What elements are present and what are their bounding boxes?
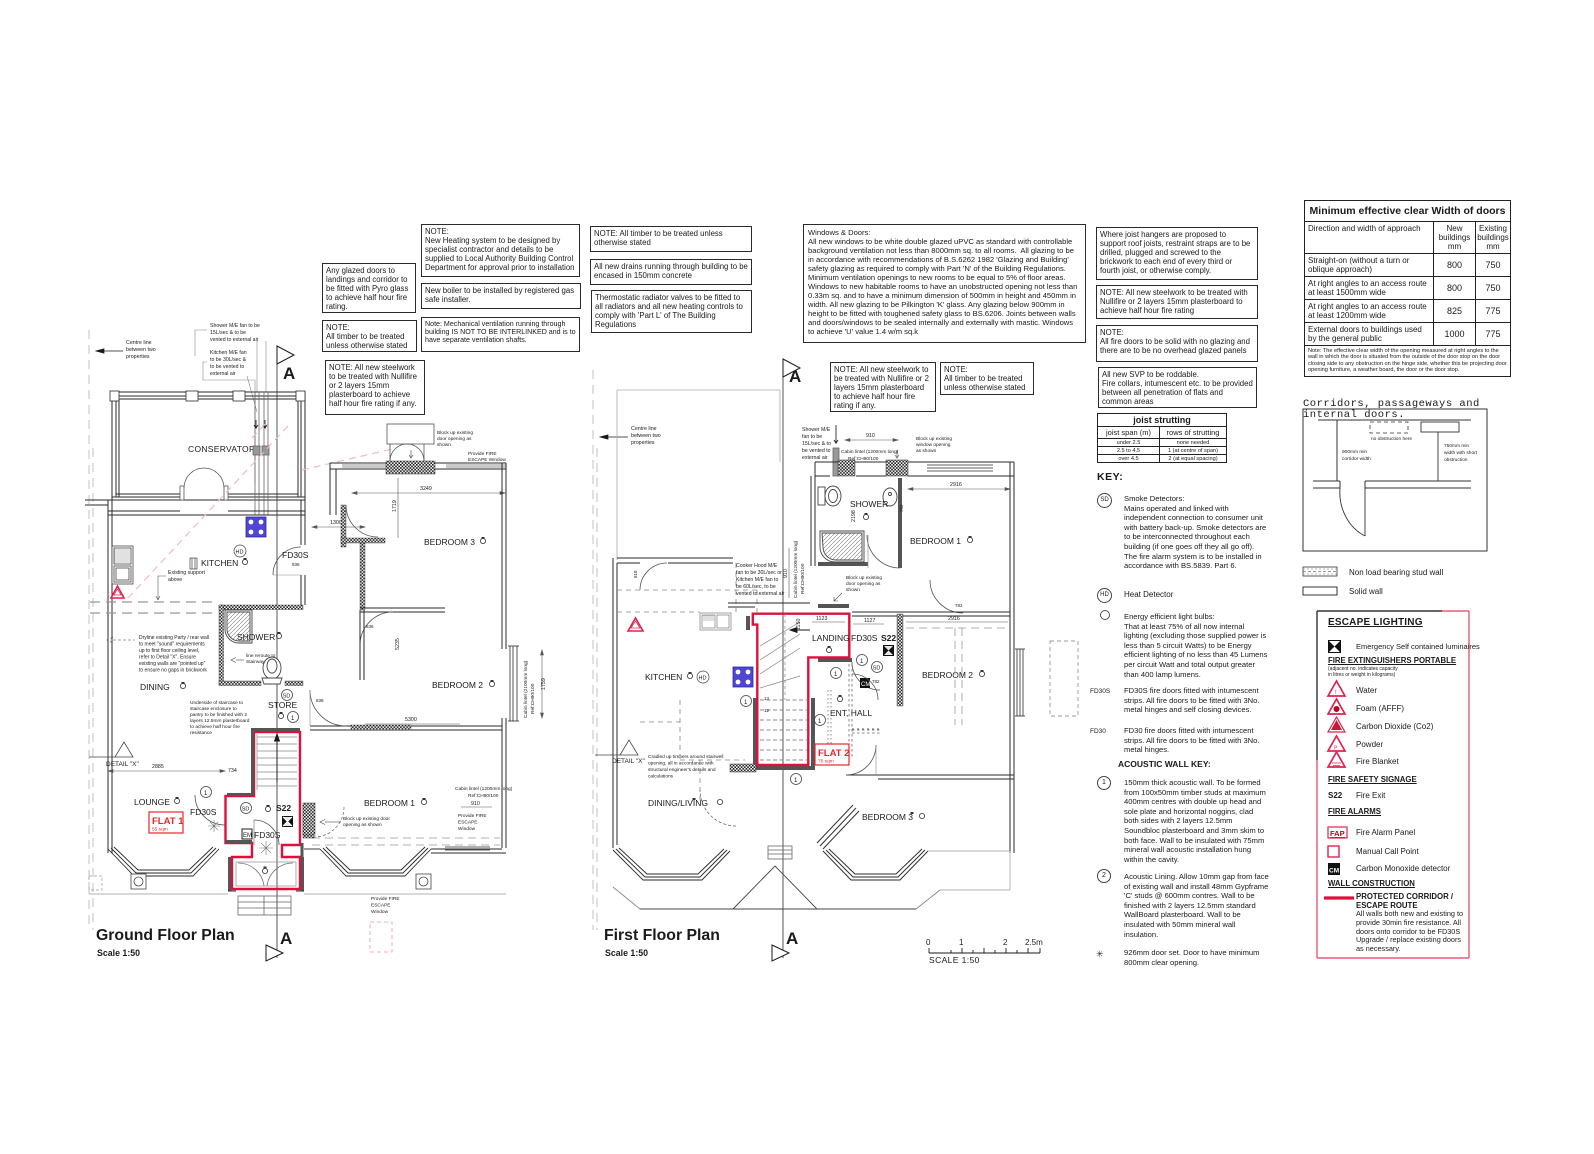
svg-text:LOUNGE: LOUNGE <box>134 797 170 807</box>
svg-text:ESCAPE: ESCAPE <box>371 903 390 909</box>
svg-text:opening as shown: opening as shown <box>343 822 382 828</box>
svg-text:Block up existing door: Block up existing door <box>343 816 390 822</box>
svg-text:Window: Window <box>371 909 389 915</box>
svg-text:1719: 1719 <box>392 500 398 512</box>
svg-text:FD30S: FD30S <box>851 633 878 643</box>
svg-text:CM: CM <box>861 682 870 688</box>
svg-text:Block up existing: Block up existing <box>916 436 952 442</box>
svg-text:as shown: as shown <box>916 448 937 454</box>
svg-text:CM: CM <box>1329 868 1339 875</box>
svg-text:EM: EM <box>243 833 252 839</box>
svg-text:be vented to: be vented to <box>802 448 831 454</box>
svg-text:2916: 2916 <box>950 482 962 488</box>
svg-text:836: 836 <box>292 562 300 567</box>
svg-text:Centre line: Centre line <box>126 340 152 346</box>
svg-text:15L/sec & to: 15L/sec & to <box>802 441 831 447</box>
svg-text:BEDROOM 3: BEDROOM 3 <box>862 812 913 822</box>
svg-text:layers 12.5mm plasterboard: layers 12.5mm plasterboard <box>190 718 250 724</box>
svg-text:Solid wall: Solid wall <box>1349 587 1383 596</box>
svg-text:Ref:CH90/100: Ref:CH90/100 <box>800 563 806 594</box>
svg-text:Cabin lintel (1200mm long): Cabin lintel (1200mm long) <box>841 449 899 455</box>
svg-text:vented to external air: vented to external air <box>736 591 785 597</box>
svg-text:Ref:CH90/100: Ref:CH90/100 <box>468 793 499 799</box>
svg-text:DINING: DINING <box>140 682 170 692</box>
svg-text:Non load bearing stud wall: Non load bearing stud wall <box>1349 568 1444 577</box>
svg-text:Centre line: Centre line <box>631 426 657 432</box>
svg-text:between two: between two <box>126 347 156 353</box>
svg-text:refer to Detail "X". Ensure: refer to Detail "X". Ensure <box>139 655 196 661</box>
svg-text:2: 2 <box>1003 938 1008 947</box>
svg-text:properties: properties <box>126 354 150 360</box>
svg-text:836: 836 <box>366 624 374 629</box>
svg-text:ENT, HALL: ENT, HALL <box>830 708 872 718</box>
svg-text:5300: 5300 <box>405 717 417 723</box>
svg-text:910: 910 <box>783 569 789 578</box>
svg-text:12: 12 <box>764 708 770 713</box>
svg-text:1127: 1127 <box>864 618 875 624</box>
svg-text:FD30S: FD30S <box>282 550 309 560</box>
svg-text:BEDROOM 1: BEDROOM 1 <box>910 536 961 546</box>
svg-text:above: above <box>168 577 182 583</box>
svg-text:Provide FIRE: Provide FIRE <box>458 813 487 819</box>
svg-text:Shower M/E fan to be: Shower M/E fan to be <box>210 323 260 329</box>
svg-text:Cabin lintel (1200mm long): Cabin lintel (1200mm long) <box>793 540 799 598</box>
svg-text:FD30S: FD30S <box>190 807 217 817</box>
svg-text:ESCAPE: ESCAPE <box>458 820 477 826</box>
svg-text:1759: 1759 <box>541 678 547 690</box>
svg-text:S22: S22 <box>276 803 291 813</box>
svg-text:external air: external air <box>802 455 828 461</box>
svg-text:782: 782 <box>955 603 963 608</box>
svg-text:910: 910 <box>471 801 480 807</box>
svg-text:pantry to be finished with 2: pantry to be finished with 2 <box>190 712 247 718</box>
svg-text:Block up existing: Block up existing <box>846 575 882 581</box>
svg-text:Underside of staircase to: Underside of staircase to <box>190 700 243 706</box>
svg-text:BEDROOM 3: BEDROOM 3 <box>424 537 475 547</box>
svg-text:vented to external air: vented to external air <box>210 337 259 343</box>
svg-text:BEDROOM 2: BEDROOM 2 <box>432 680 483 690</box>
svg-text:782: 782 <box>872 679 880 684</box>
svg-text:13: 13 <box>764 696 770 701</box>
svg-text:S22: S22 <box>881 633 896 643</box>
svg-text:Ref:CH90/100: Ref:CH90/100 <box>848 456 879 462</box>
svg-text:1: 1 <box>959 938 964 947</box>
svg-text:obstruction: obstruction <box>1444 457 1468 463</box>
svg-text:818: 818 <box>633 570 638 578</box>
svg-text:5235: 5235 <box>395 638 401 650</box>
svg-text:ESCAPE Window: ESCAPE Window <box>468 457 506 463</box>
svg-text:KITCHEN: KITCHEN <box>645 672 682 682</box>
svg-text:calculations: calculations <box>648 774 674 780</box>
svg-text:no obstruction here: no obstruction here <box>1371 436 1412 442</box>
svg-text:2.5m: 2.5m <box>1025 938 1043 947</box>
svg-text:BEDROOM 2: BEDROOM 2 <box>922 670 973 680</box>
svg-text:A: A <box>283 364 295 383</box>
svg-text:Cabin lintel (1200mm long): Cabin lintel (1200mm long) <box>455 786 513 792</box>
svg-text:734: 734 <box>228 768 237 774</box>
svg-text:Existing support: Existing support <box>168 570 205 576</box>
svg-text:2916: 2916 <box>948 616 960 622</box>
svg-text:55 sqm: 55 sqm <box>152 827 168 833</box>
svg-text:A: A <box>786 929 798 948</box>
svg-text:SHOWER: SHOWER <box>237 632 275 642</box>
svg-text:BEDROOM 1: BEDROOM 1 <box>364 798 415 808</box>
svg-text:DETAIL "X": DETAIL "X" <box>106 761 139 768</box>
svg-text:HD: HD <box>236 550 244 556</box>
svg-text:838: 838 <box>316 698 324 703</box>
svg-text:existing walls are "pointed up: existing walls are "pointed up" <box>139 661 206 667</box>
svg-text:up to first floor ceiling leve: up to first floor ceiling level, <box>139 648 199 654</box>
svg-text:DETAIL "X": DETAIL "X" <box>612 758 645 765</box>
svg-text:LANDING: LANDING <box>812 633 850 643</box>
svg-text:0: 0 <box>926 938 931 947</box>
svg-text:782: 782 <box>899 504 904 512</box>
svg-text:900mm min: 900mm min <box>1342 449 1367 455</box>
svg-text:Provide FIRE: Provide FIRE <box>371 896 400 902</box>
svg-text:DINING/LIVING: DINING/LIVING <box>648 798 708 808</box>
svg-text:SD: SD <box>283 694 291 700</box>
svg-text:Shower M/E: Shower M/E <box>802 427 831 433</box>
svg-text:STORE: STORE <box>268 700 297 710</box>
svg-text:FAP: FAP <box>1330 829 1345 838</box>
svg-text:FLAT 2: FLAT 2 <box>818 748 850 759</box>
svg-text:2885: 2885 <box>152 764 164 770</box>
svg-text:to ensure no gaps in brickwork: to ensure no gaps in brickwork <box>139 668 207 674</box>
svg-text:Window: Window <box>458 826 476 832</box>
svg-text:Kitchen M/E fan to: Kitchen M/E fan to <box>736 577 779 583</box>
svg-text:door opening as: door opening as <box>437 436 472 442</box>
svg-text:Cradled up timbers around stai: Cradled up timbers around stairwell <box>648 754 723 760</box>
svg-text:A: A <box>280 929 292 948</box>
svg-text:corridor width: corridor width <box>1342 456 1371 462</box>
svg-text:Provide FIRE: Provide FIRE <box>468 451 497 457</box>
svg-text:resistance: resistance <box>190 730 212 736</box>
svg-text:1123: 1123 <box>816 616 827 622</box>
svg-text:SD: SD <box>242 807 250 813</box>
svg-text:2198: 2198 <box>851 510 857 522</box>
svg-text:internal doors.: internal doors. <box>1303 409 1405 421</box>
svg-text:Block up existing: Block up existing <box>437 430 473 436</box>
svg-text:HD: HD <box>699 676 707 682</box>
svg-text:KITCHEN: KITCHEN <box>201 558 238 568</box>
svg-text:FLAT 1: FLAT 1 <box>152 816 184 827</box>
svg-text:Cooker Hood M/E: Cooker Hood M/E <box>736 563 778 569</box>
svg-text:door opening as: door opening as <box>846 581 881 587</box>
svg-text:910: 910 <box>866 433 875 439</box>
svg-text:A: A <box>789 367 801 386</box>
svg-text:to achieve half hour fire: to achieve half hour fire <box>190 724 240 730</box>
svg-text:staircase enclosure to: staircase enclosure to <box>190 706 237 712</box>
svg-text:window opening: window opening <box>916 442 951 448</box>
svg-text:1300: 1300 <box>330 520 342 526</box>
svg-text:SCALE 1:50: SCALE 1:50 <box>929 955 980 965</box>
svg-text:Ref:CH90/100: Ref:CH90/100 <box>530 683 536 714</box>
svg-text:to be 30L/sec &: to be 30L/sec & <box>210 357 247 363</box>
svg-text:to meet "sound" requirements: to meet "sound" requirements <box>139 642 205 648</box>
svg-text:opening, all in accordance wit: opening, all in accordance with <box>648 761 714 767</box>
svg-text:between two: between two <box>631 433 661 439</box>
svg-text:3249: 3249 <box>420 486 432 492</box>
svg-text:shown: shown <box>846 587 860 593</box>
svg-text:to be vented to: to be vented to <box>210 364 244 370</box>
svg-text:750mm min: 750mm min <box>1444 443 1469 449</box>
svg-text:Kitchen M/E fan: Kitchen M/E fan <box>210 350 247 356</box>
svg-text:be 60L/sec, to be: be 60L/sec, to be <box>736 584 776 590</box>
svg-text:width with short: width with short <box>1444 450 1478 456</box>
svg-text:Cabin lintel (2100mm long): Cabin lintel (2100mm long) <box>523 660 529 718</box>
svg-text:shown: shown <box>437 442 451 448</box>
svg-text:SHOWER: SHOWER <box>850 499 888 509</box>
svg-text:CONSERVATORY: CONSERVATORY <box>188 444 261 454</box>
svg-text:Dryline existing Party / rear: Dryline existing Party / rear wall <box>139 635 209 641</box>
svg-text:fan to be: fan to be <box>802 434 822 440</box>
svg-text:SD: SD <box>873 666 881 672</box>
svg-text:15L/sec & to be: 15L/sec & to be <box>210 330 246 336</box>
svg-text:structural engineer's details: structural engineer's details and <box>648 767 716 773</box>
svg-text:properties: properties <box>631 440 655 446</box>
svg-text:75 sqm: 75 sqm <box>818 759 834 765</box>
svg-text:fan to be 30L/sec or: fan to be 30L/sec or <box>736 570 782 576</box>
svg-text:external air: external air <box>210 371 236 377</box>
